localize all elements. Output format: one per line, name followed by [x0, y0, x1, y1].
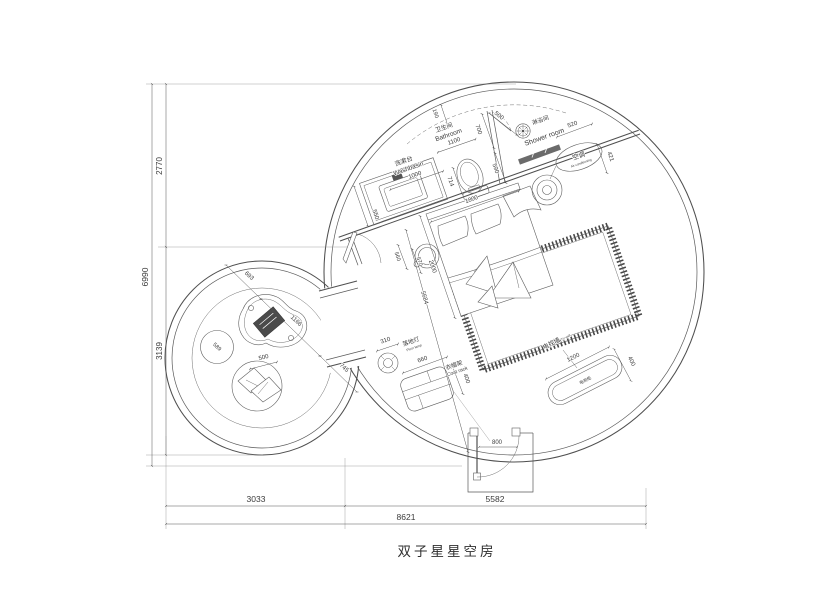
dim-800: 800: [492, 440, 503, 446]
drawing-title: 双子星星空房: [398, 544, 497, 559]
floor-lamp-label: 落地灯 Floor lamp: [401, 335, 422, 353]
dim-500-chair: 500: [258, 354, 270, 362]
dim-1166: 1166: [289, 315, 303, 329]
dim-height-top: 2770: [155, 157, 164, 175]
dim-width-left: 3033: [247, 494, 266, 504]
lounge-chair: [232, 361, 282, 411]
dim-310: 310: [380, 336, 392, 345]
washbasin-label: 洗漱台 Washbasin 1000: [382, 146, 444, 190]
tv-wall-label-en: TV wall: [560, 333, 571, 341]
dim-520: 520: [567, 120, 579, 129]
shower-head-icon: [516, 124, 530, 138]
corridor: [318, 280, 367, 374]
air-conditioner: 空调 Air conditioning: [532, 137, 606, 205]
dim-190: 190: [431, 108, 440, 119]
dim-714: 714: [445, 176, 454, 188]
door-swing: [358, 234, 381, 263]
bed: [426, 183, 553, 316]
cup: [248, 305, 253, 310]
ac-label-bubble: 空调 Air conditioning: [552, 137, 606, 176]
shower-label-zh: 淋浴间: [531, 113, 550, 126]
dim-total-width: 8621: [397, 512, 416, 522]
dim-height-bottom: 3139: [155, 342, 164, 360]
cup: [288, 335, 293, 340]
dim-total-height: 6990: [140, 267, 150, 286]
door-leaf: [343, 232, 357, 263]
dim-5684: 5684: [419, 290, 429, 305]
dim-560: 560: [393, 251, 402, 262]
dim-700: 700: [473, 124, 482, 136]
dim-693: 693: [243, 271, 255, 283]
dim-500: 500: [493, 111, 505, 122]
dimensions: 6990 2770 3139 3033 5582 8621 190 700 50…: [140, 84, 646, 529]
shower-screen: [519, 147, 560, 162]
floor-lamp: [378, 353, 398, 373]
dim-400-rack: 400: [461, 373, 470, 385]
floor-plan-drawing: 空调 Air conditioning 电视柜: [0, 0, 837, 592]
dim-421: 421: [605, 151, 614, 163]
door-post: [470, 428, 478, 436]
bathroom-label: 卫生间 Bathroom 1100: [429, 115, 475, 152]
floor-plan-sheet: 空调 Air conditioning 电视柜: [0, 0, 837, 592]
dim-660: 660: [417, 355, 429, 364]
dim-400-tv: 400: [626, 356, 636, 368]
tv-cabinet: 电视柜: [544, 350, 626, 409]
door-post: [512, 428, 520, 436]
table-tray: [253, 307, 284, 338]
dim-589: 589: [211, 342, 222, 353]
dim-width-right: 5582: [486, 494, 505, 504]
